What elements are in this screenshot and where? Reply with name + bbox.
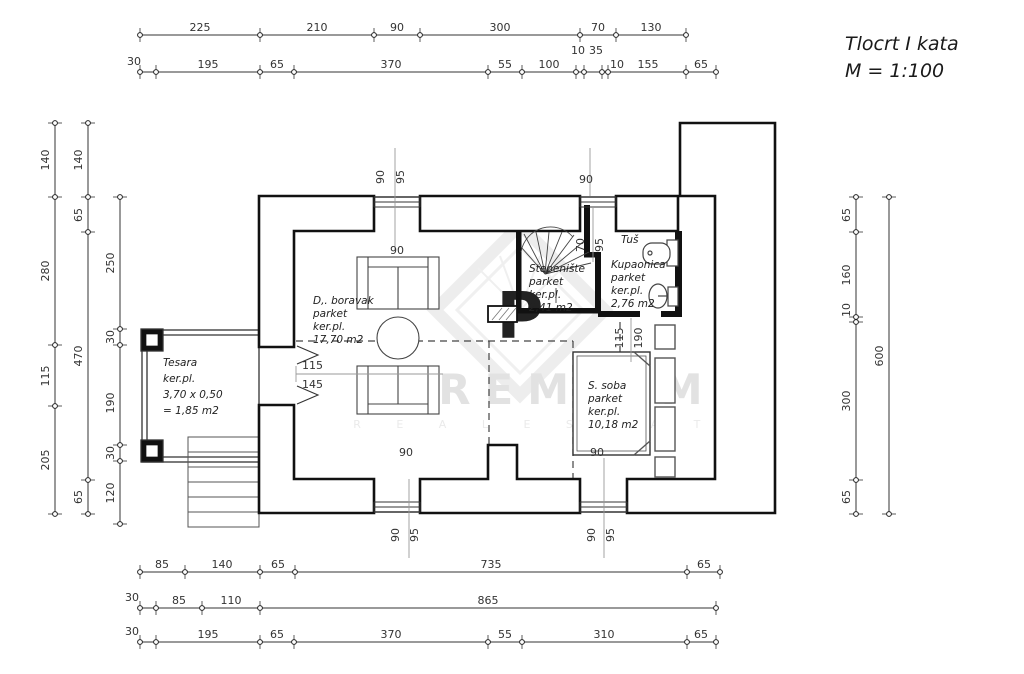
drawing-title: Tlocrt I kata (845, 33, 959, 55)
dim-labels-bottom-2: 30 85 110 865 (125, 591, 499, 607)
svg-text:10: 10 (571, 44, 585, 57)
svg-text:Tesara: Tesara (163, 357, 197, 369)
svg-text:190: 190 (104, 393, 117, 414)
svg-text:55: 55 (498, 628, 512, 641)
dim-labels-right-2: 600 (873, 346, 886, 367)
svg-text:65: 65 (840, 490, 853, 504)
svg-text:30: 30 (104, 446, 117, 460)
room-label-terrace: Tesara ker.pl. 3,70 x 0,50 = 1,85 m2 (163, 357, 223, 417)
svg-text:280: 280 (39, 261, 52, 282)
dim-labels-top-2: 30 195 65 370 55 100 10 35 10 155 65 (127, 44, 708, 71)
svg-text:205: 205 (39, 450, 52, 471)
svg-text:parket: parket (610, 272, 646, 284)
svg-text:600: 600 (873, 346, 886, 367)
svg-text:30: 30 (104, 330, 117, 344)
svg-text:65: 65 (72, 208, 85, 222)
svg-text:D,. boravak: D,. boravak (313, 295, 375, 307)
svg-text:65: 65 (694, 628, 708, 641)
svg-text:S. soba: S. soba (588, 380, 626, 392)
coffee-table-icon (377, 317, 419, 359)
room-label-living: D,. boravak parket ker.pl. 17,70 m2 (312, 295, 375, 346)
svg-text:65: 65 (72, 490, 85, 504)
floor-plan-canvas: P PREMIUM R E A L E S T A T E (0, 0, 1024, 674)
svg-text:17,70 m2: 17,70 m2 (313, 334, 364, 346)
svg-text:ker.pl.: ker.pl. (588, 406, 620, 418)
svg-text:130: 130 (641, 21, 662, 34)
svg-text:Kupaonica: Kupaonica (611, 259, 666, 271)
dim-col-right-1 (849, 195, 863, 517)
dim-row-bottom-3 (138, 635, 719, 649)
svg-text:160: 160 (840, 265, 853, 286)
dim-labels-left-2: 140 65 470 65 (72, 150, 85, 505)
svg-text:470: 470 (72, 346, 85, 367)
shower-label: Tuš (621, 234, 639, 246)
pillow-icon (655, 358, 675, 403)
svg-text:310: 310 (594, 628, 615, 641)
svg-text:115: 115 (613, 328, 626, 349)
dim-col-left-3 (113, 195, 127, 527)
svg-text:2,41 m2: 2,41 m2 (529, 302, 573, 314)
svg-text:100: 100 (539, 58, 560, 71)
svg-text:ker.pl.: ker.pl. (529, 289, 561, 301)
nightstand-icon (655, 457, 675, 477)
svg-text:90: 90 (590, 446, 604, 459)
svg-text:95: 95 (604, 528, 617, 542)
svg-text:90: 90 (390, 21, 404, 34)
svg-text:300: 300 (840, 391, 853, 412)
svg-text:65: 65 (840, 208, 853, 222)
dim-labels-bottom-3: 30 195 65 370 55 310 65 (125, 625, 708, 641)
svg-text:65: 65 (694, 58, 708, 71)
svg-text:65: 65 (270, 628, 284, 641)
title-block: Tlocrt I kata M = 1:100 (845, 33, 959, 82)
svg-text:300: 300 (490, 21, 511, 34)
svg-text:ker.pl.: ker.pl. (611, 285, 643, 297)
svg-text:ker.pl.: ker.pl. (313, 321, 345, 333)
dim-labels-left-1: 140 280 115 205 (39, 150, 52, 471)
dim-labels-right-1: 65 160 10 300 65 (840, 208, 853, 504)
svg-text:85: 85 (155, 558, 169, 571)
svg-text:155: 155 (638, 58, 659, 71)
svg-text:= 1,85 m2: = 1,85 m2 (163, 405, 219, 417)
pillow-icon (655, 407, 675, 451)
svg-text:10,18 m2: 10,18 m2 (588, 419, 639, 431)
svg-text:90: 90 (585, 528, 598, 542)
svg-text:parket: parket (528, 276, 564, 288)
floor-plan-page: P PREMIUM R E A L E S T A T E (0, 0, 1024, 674)
svg-text:55: 55 (498, 58, 512, 71)
svg-text:65: 65 (270, 58, 284, 71)
svg-text:10: 10 (610, 58, 624, 71)
svg-text:145: 145 (302, 378, 323, 391)
svg-text:90: 90 (389, 528, 402, 542)
svg-text:parket: parket (312, 308, 348, 320)
svg-text:95: 95 (593, 238, 606, 252)
svg-text:225: 225 (190, 21, 211, 34)
dim-labels-left-3: 250 30 190 30 120 (104, 253, 117, 504)
svg-text:370: 370 (381, 628, 402, 641)
dim-col-left-2 (81, 121, 95, 517)
svg-text:140: 140 (212, 558, 233, 571)
svg-text:ker.pl.: ker.pl. (163, 373, 195, 385)
svg-text:195: 195 (198, 628, 219, 641)
svg-text:370: 370 (381, 58, 402, 71)
dim-row-top-1 (138, 28, 689, 42)
sofa-icon (357, 366, 439, 414)
svg-text:90: 90 (390, 244, 404, 257)
svg-text:90: 90 (579, 173, 593, 186)
drawing-scale: M = 1:100 (845, 60, 944, 82)
svg-text:30: 30 (127, 55, 141, 68)
svg-text:3,70 x 0,50: 3,70 x 0,50 (163, 389, 223, 401)
svg-text:140: 140 (39, 150, 52, 171)
svg-text:110: 110 (221, 594, 242, 607)
svg-text:35: 35 (589, 44, 603, 57)
svg-text:190: 190 (632, 328, 645, 349)
svg-text:735: 735 (481, 558, 502, 571)
watermark-subtext: R E A L E S T A T E (353, 418, 759, 431)
svg-text:115: 115 (302, 359, 323, 372)
nightstand-icon (655, 325, 675, 349)
svg-text:65: 65 (271, 558, 285, 571)
svg-text:195: 195 (198, 58, 219, 71)
wall-pier (488, 306, 517, 322)
svg-text:65: 65 (697, 558, 711, 571)
svg-text:210: 210 (307, 21, 328, 34)
svg-text:10: 10 (840, 303, 853, 317)
svg-text:30: 30 (125, 625, 139, 638)
svg-text:90: 90 (399, 446, 413, 459)
svg-text:120: 120 (104, 483, 117, 504)
svg-text:95: 95 (394, 170, 407, 184)
door-arrow-icon (297, 346, 318, 404)
svg-text:115: 115 (39, 366, 52, 387)
svg-text:parket: parket (587, 393, 623, 405)
svg-text:70: 70 (574, 238, 587, 252)
svg-text:Stepenište: Stepenište (529, 263, 585, 275)
dim-labels-bottom-1: 85 140 65 735 65 (155, 558, 711, 571)
svg-text:865: 865 (478, 594, 499, 607)
svg-text:90: 90 (374, 170, 387, 184)
svg-text:30: 30 (125, 591, 139, 604)
svg-text:140: 140 (72, 150, 85, 171)
svg-text:85: 85 (172, 594, 186, 607)
svg-text:70: 70 (591, 21, 605, 34)
svg-text:2,76 m2: 2,76 m2 (611, 298, 655, 310)
svg-text:95: 95 (408, 528, 421, 542)
outdoor-stairs-icon (188, 437, 259, 527)
dim-row-top-2 (138, 65, 719, 79)
svg-text:250: 250 (104, 253, 117, 274)
